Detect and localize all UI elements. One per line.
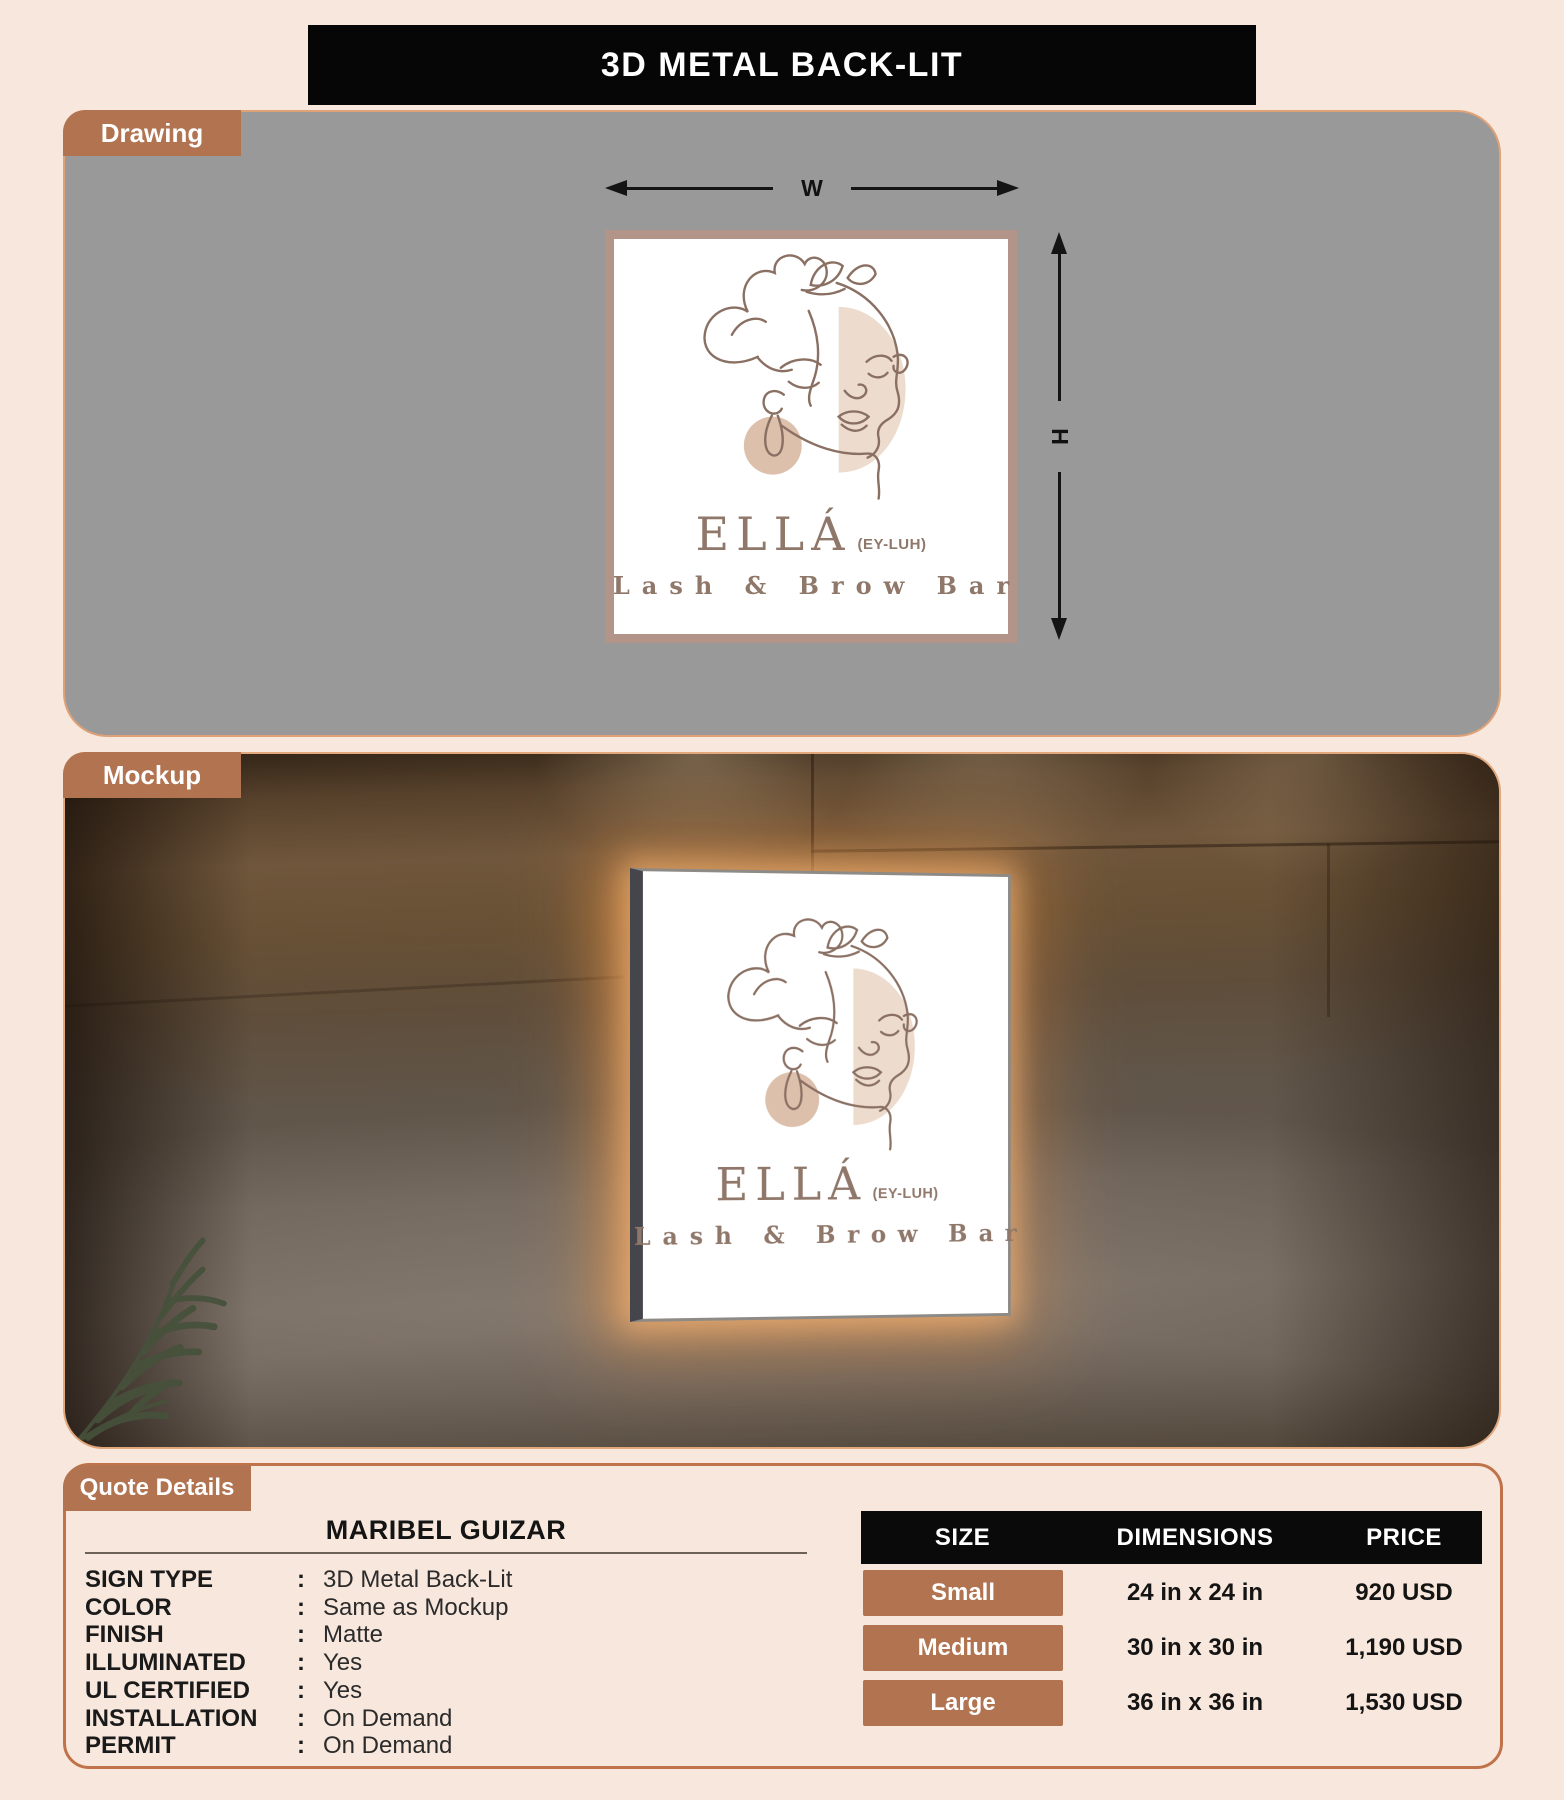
detail-separator: : <box>297 1621 323 1649</box>
detail-separator: : <box>297 1705 323 1733</box>
pricing-row-small: Small 24 in x 24 in 920 USD <box>861 1570 1482 1616</box>
plant-leaves-icon <box>65 1220 387 1447</box>
brand-name: ELLÁ <box>696 511 852 557</box>
detail-row-color: COLOR : Same as Mockup <box>85 1594 512 1622</box>
detail-separator: : <box>297 1649 323 1677</box>
detail-separator: : <box>297 1594 323 1622</box>
column-header-dimensions: DIMENSIONS <box>1064 1511 1326 1564</box>
pricing-table-header: SIZE DIMENSIONS PRICE <box>861 1511 1482 1564</box>
arrow-up-icon <box>1051 232 1067 254</box>
brand-name-row: ELLÁ (EY-LUH) <box>715 1160 938 1207</box>
dimension-line <box>1058 472 1061 619</box>
column-header-size: SIZE <box>861 1511 1064 1564</box>
detail-row-illuminated: ILLUMINATED : Yes <box>85 1649 512 1677</box>
pricing-row-large: Large 36 in x 36 in 1,530 USD <box>861 1680 1482 1726</box>
arrow-right-icon <box>997 180 1019 196</box>
customer-underline <box>85 1552 807 1554</box>
brand-pronunciation: (EY-LUH) <box>873 1185 939 1202</box>
drawing-tab: Drawing <box>63 110 241 156</box>
brand-tagline: Lash & Brow Bar <box>601 571 1021 600</box>
quote-details-tab-label: Quote Details <box>80 1474 235 1502</box>
price-value: 1,190 USD <box>1326 1625 1482 1671</box>
detail-value: Yes <box>323 1677 512 1705</box>
detail-row-sign-type: SIGN TYPE : 3D Metal Back-Lit <box>85 1566 512 1594</box>
detail-label: COLOR <box>85 1594 297 1622</box>
dimensions-value: 36 in x 36 in <box>1064 1680 1326 1726</box>
page-title: 3D METAL BACK-LIT <box>308 25 1256 105</box>
detail-separator: : <box>297 1566 323 1594</box>
mockup-tab: Mockup <box>63 752 241 798</box>
customer-name: MARIBEL GUIZAR <box>85 1515 807 1546</box>
column-header-price: PRICE <box>1326 1511 1482 1564</box>
size-label: Small <box>931 1579 995 1607</box>
sign-drawing: ELLÁ (EY-LUH) Lash & Brow Bar <box>605 230 1017 643</box>
mockup-photo: ELLÁ (EY-LUH) Lash & Brow Bar <box>65 754 1499 1447</box>
quote-details-panel: Quote Details MARIBEL GUIZAR SIGN TYPE :… <box>63 1463 1503 1769</box>
ella-logo-lineart-icon <box>661 249 960 509</box>
detail-value: On Demand <box>323 1705 512 1733</box>
sign-face: ELLÁ (EY-LUH) Lash & Brow Bar <box>614 239 1008 634</box>
detail-value: On Demand <box>323 1732 512 1760</box>
detail-value: Matte <box>323 1621 512 1649</box>
arrow-down-icon <box>1051 618 1067 640</box>
mockup-tab-label: Mockup <box>103 760 201 791</box>
size-label: Large <box>930 1689 995 1717</box>
size-large-button[interactable]: Large <box>863 1680 1063 1726</box>
pricing-table: SIZE DIMENSIONS PRICE Small 24 in x 24 i… <box>861 1511 1482 1726</box>
size-medium-button[interactable]: Medium <box>863 1625 1063 1671</box>
width-label: W <box>801 175 823 202</box>
mockup-panel: ELLÁ (EY-LUH) Lash & Brow Bar Mockup <box>63 752 1501 1449</box>
quote-detail-list: SIGN TYPE : 3D Metal Back-Lit COLOR : Sa… <box>85 1566 512 1760</box>
brand-tagline: Lash & Brow Bar <box>622 1218 1028 1251</box>
detail-label: SIGN TYPE <box>85 1566 297 1594</box>
detail-row-installation: INSTALLATION : On Demand <box>85 1705 512 1733</box>
height-label: H <box>1046 428 1073 445</box>
width-dimension: W <box>605 174 1019 202</box>
size-label: Medium <box>918 1634 1009 1662</box>
detail-label: UL CERTIFIED <box>85 1677 297 1705</box>
detail-label: FINISH <box>85 1621 297 1649</box>
sign-mockup: ELLÁ (EY-LUH) Lash & Brow Bar <box>630 868 1011 1322</box>
dimension-line <box>851 187 997 190</box>
brand-name-row: ELLÁ (EY-LUH) <box>696 511 927 557</box>
detail-row-ul-certified: UL CERTIFIED : Yes <box>85 1677 512 1705</box>
brand-pronunciation: (EY-LUH) <box>857 536 926 553</box>
dimensions-value: 24 in x 24 in <box>1064 1570 1326 1616</box>
dimensions-value: 30 in x 30 in <box>1064 1625 1326 1671</box>
detail-label: ILLUMINATED <box>85 1649 297 1677</box>
sign-face: ELLÁ (EY-LUH) Lash & Brow Bar <box>643 871 1008 1319</box>
sign-quote-sheet: { "page": { "title": "3D METAL BACK-LIT"… <box>0 0 1564 1800</box>
detail-value: Yes <box>323 1649 512 1677</box>
price-value: 920 USD <box>1326 1570 1482 1616</box>
detail-value: 3D Metal Back-Lit <box>323 1566 512 1594</box>
dimension-line <box>627 187 773 190</box>
detail-label: PERMIT <box>85 1732 297 1760</box>
pricing-table-body: Small 24 in x 24 in 920 USD Medium 30 in… <box>861 1570 1482 1726</box>
detail-row-permit: PERMIT : On Demand <box>85 1732 512 1760</box>
drawing-panel: Drawing W H <box>63 110 1501 737</box>
detail-value: Same as Mockup <box>323 1594 512 1622</box>
height-dimension: H <box>1041 232 1077 640</box>
page-title-text: 3D METAL BACK-LIT <box>601 46 963 85</box>
dimension-line <box>1058 254 1061 401</box>
drawing-tab-label: Drawing <box>101 118 204 149</box>
detail-row-finish: FINISH : Matte <box>85 1621 512 1649</box>
price-value: 1,530 USD <box>1326 1680 1482 1726</box>
quote-details-tab: Quote Details <box>63 1465 251 1511</box>
ella-logo-lineart-icon <box>688 912 965 1160</box>
arrow-left-icon <box>605 180 627 196</box>
pricing-row-medium: Medium 30 in x 30 in 1,190 USD <box>861 1625 1482 1671</box>
size-small-button[interactable]: Small <box>863 1570 1063 1616</box>
brand-name: ELLÁ <box>715 1161 866 1207</box>
detail-separator: : <box>297 1677 323 1705</box>
detail-label: INSTALLATION <box>85 1705 297 1733</box>
detail-separator: : <box>297 1732 323 1760</box>
